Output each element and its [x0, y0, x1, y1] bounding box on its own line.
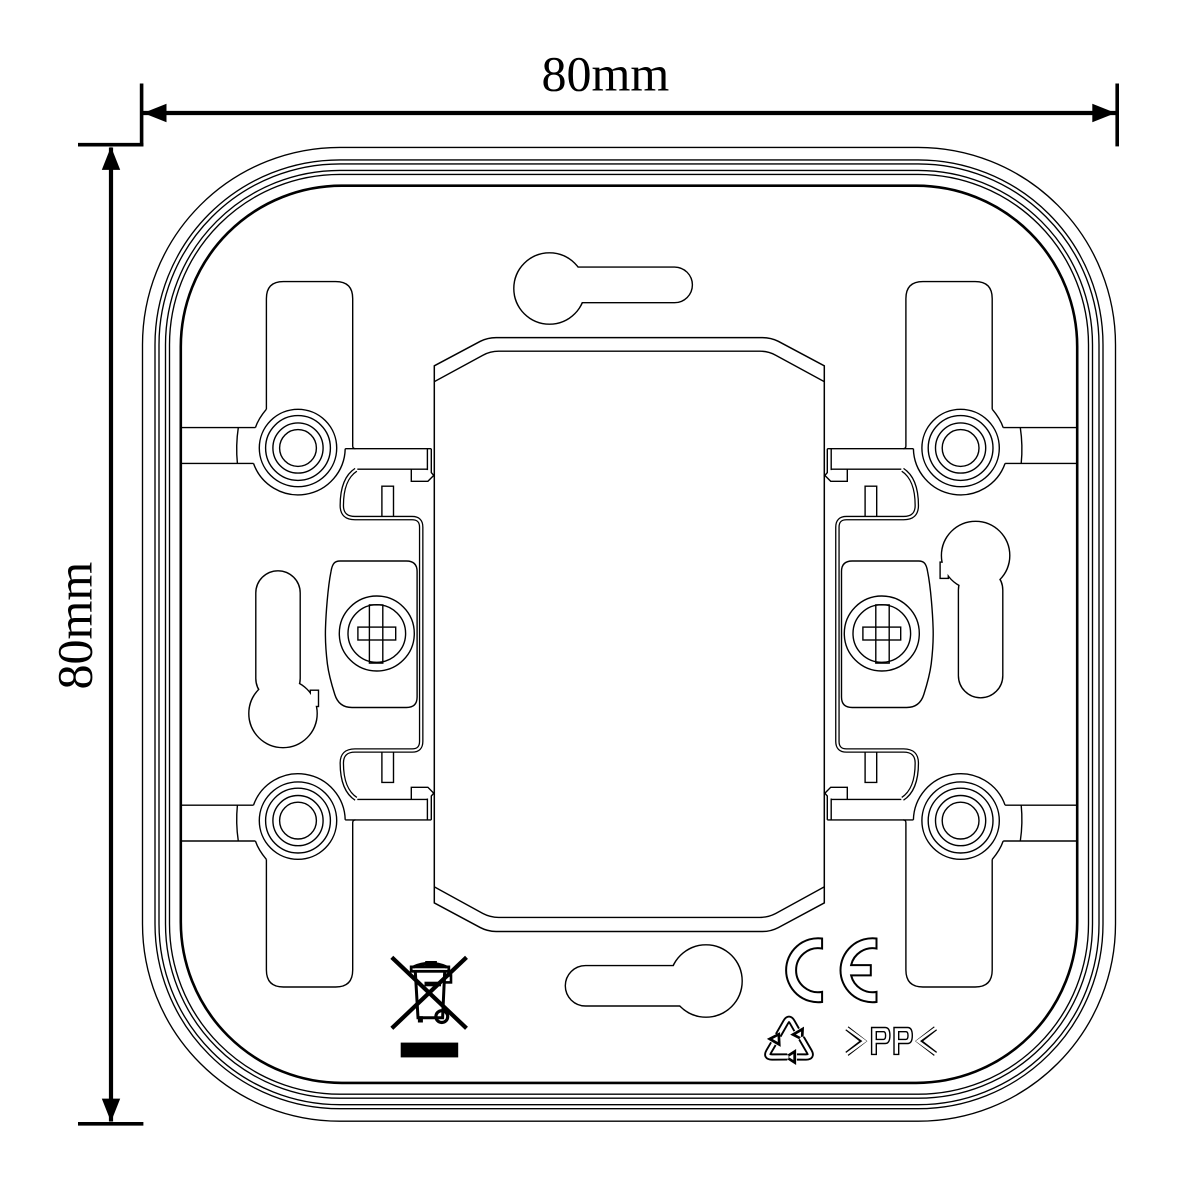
svg-text:80mm: 80mm [542, 46, 670, 102]
svg-text:80mm: 80mm [47, 562, 103, 690]
